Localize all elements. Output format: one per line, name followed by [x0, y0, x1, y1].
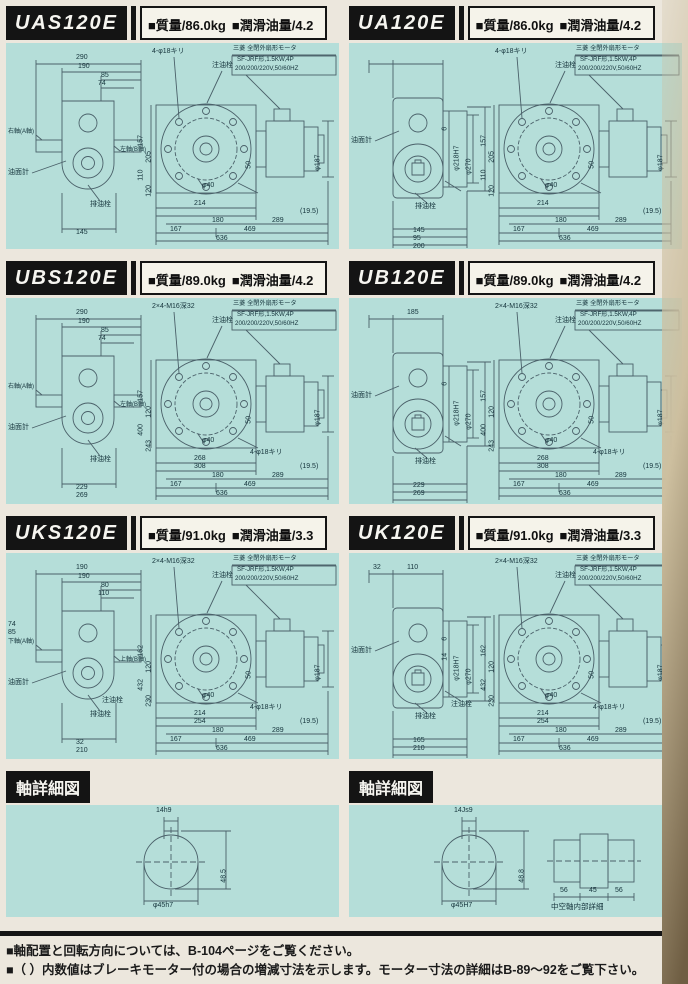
model-badge: UBS120E — [6, 261, 127, 295]
section-title: 軸詳細図 — [6, 771, 90, 803]
spec-oil: ■潤滑油量/4.2 — [560, 18, 642, 33]
dim-label: φ187 — [314, 154, 322, 170]
shaft-detail-drawing: 14h9 48.5 φ45h7 — [6, 805, 339, 917]
dim-label: 56 — [615, 887, 623, 895]
dim-label: 289 — [615, 472, 627, 480]
dim-label: 120 — [145, 185, 153, 197]
dim-label: 110 — [137, 170, 145, 181]
shaft-lineart — [6, 805, 339, 917]
header-separator — [459, 261, 464, 295]
spec-oil: ■潤滑油量/4.2 — [560, 273, 642, 288]
dim-label: φ40 — [545, 182, 557, 190]
dim-label: 157 — [137, 135, 145, 147]
motor-spec-line: 200/200/220V,50/60HZ — [578, 66, 641, 73]
dim-label: 180 — [212, 217, 224, 225]
dim-label: 205 — [145, 151, 153, 163]
motor-spec-line: SF-JRF形,1.5KW,4P — [580, 57, 637, 64]
shaft-detail-drawing: 14Js9 48.8 φ45H7 56 45 56 中空軸内部詳細 — [349, 805, 682, 917]
dim-label: 167 — [170, 481, 182, 489]
dim-label: 32 — [373, 564, 381, 572]
panel-row-1: UAS120E ■質量/86.0kg■潤滑油量/4.2 290 190 85 7… — [6, 6, 682, 249]
dim-label: (19.5) — [643, 208, 661, 216]
spec-oil: ■潤滑油量/4.2 — [232, 273, 314, 288]
dim-label: 636 — [559, 490, 571, 498]
dim-label: 167 — [513, 226, 525, 234]
dim-label: 229 — [413, 482, 425, 490]
section-title: 軸詳細図 — [349, 771, 433, 803]
footer-note-1: ■軸配置と回転方向については、B-104ページをご覧ください。 — [6, 942, 682, 961]
dim-label: φ45H7 — [451, 902, 472, 910]
motor-spec-line: 三菱 全閉外扇形モータ — [233, 556, 297, 563]
dim-label: 636 — [216, 235, 228, 243]
dim-label: 74 — [98, 335, 106, 343]
spec-mass: ■質量/86.0kg — [148, 18, 226, 33]
panel-ubs120e: UBS120E ■質量/89.0kg■潤滑油量/4.2 290 190 85 7… — [6, 261, 339, 504]
footer-note-2: ■（ ）内数値はブレーキモーター付の場合の増減寸法を示します。モーター寸法の詳細… — [6, 961, 682, 980]
shaft-detail-section-left: 軸詳細図 14h9 48.5 φ45h7 — [6, 771, 339, 917]
dim-label: 4-φ18キリ — [593, 704, 626, 712]
dim-label: 2×4-M16深32 — [152, 303, 195, 311]
dim-label: 157 — [137, 390, 145, 402]
dim-label: 50 — [245, 416, 253, 424]
dim-label: 469 — [244, 481, 256, 489]
motor-spec-line: SF-JRF形,1.5KW,4P — [237, 57, 294, 64]
dim-label: 210 — [413, 745, 425, 753]
dim-label: 4-φ18キリ — [152, 48, 185, 56]
dim-label: 214 — [537, 710, 549, 718]
dim-label: 48.5 — [220, 869, 228, 883]
dim-label: 80 — [101, 582, 109, 590]
footer-notes: ■軸配置と回転方向については、B-104ページをご覧ください。 ■（ ）内数値は… — [6, 942, 682, 980]
dim-label: 289 — [615, 217, 627, 225]
spec-oil: ■潤滑油量/3.3 — [232, 528, 314, 543]
dim-label: 2×4-M16深32 — [495, 558, 538, 566]
dim-label: 289 — [615, 727, 627, 735]
spec-box: ■質量/89.0kg■潤滑油量/4.2 — [140, 261, 327, 295]
dim-label: 230 — [145, 695, 153, 707]
dim-label: 74 — [98, 80, 106, 88]
dim-label: φ270 — [465, 158, 473, 174]
part-label: 排油栓 — [415, 458, 436, 466]
dim-label: 269 — [76, 492, 88, 500]
dim-label: 110 — [480, 170, 488, 181]
dim-label: 120 — [145, 661, 153, 673]
dim-label: 110 — [98, 590, 109, 598]
dim-label: 145 — [76, 229, 88, 237]
dim-label: 4-φ18キリ — [593, 449, 626, 457]
dim-label: φ218H7 — [453, 146, 461, 171]
dim-label: 180 — [212, 727, 224, 735]
dim-label: 157 — [480, 135, 488, 147]
spec-box: ■質量/86.0kg■潤滑油量/4.2 — [140, 6, 327, 40]
page-edge-shadow — [662, 0, 688, 984]
dim-label: 269 — [413, 490, 425, 498]
dim-label: φ40 — [545, 692, 557, 700]
dim-label: 254 — [194, 718, 206, 726]
dim-label: 50 — [245, 671, 253, 679]
dim-label: 636 — [559, 235, 571, 243]
part-label: 注油栓 — [212, 62, 233, 70]
part-label: 油面計 — [8, 169, 29, 177]
drawing-lineart — [6, 553, 339, 759]
dim-label: 45 — [589, 887, 597, 895]
panel-uk120e: UK120E ■質量/91.0kg■潤滑油量/3.3 110 32 油面計 6 … — [349, 516, 682, 759]
dim-label: 85 — [101, 327, 109, 335]
dim-label: 190 — [78, 63, 90, 71]
panel-uks120e: UKS120E ■質量/91.0kg■潤滑油量/3.3 190 190 80 1… — [6, 516, 339, 759]
dim-label: (19.5) — [300, 463, 318, 471]
spec-box: ■質量/89.0kg■潤滑油量/4.2 — [468, 261, 655, 295]
dim-label: 289 — [272, 217, 284, 225]
dim-label: φ270 — [465, 668, 473, 684]
dim-label: 6 — [441, 637, 449, 641]
dim-label: 162 — [137, 645, 145, 657]
dim-label: 243 — [488, 440, 496, 452]
dim-label: 167 — [513, 736, 525, 744]
dim-label: 167 — [170, 736, 182, 744]
shaft-detail-row: 軸詳細図 14h9 48.5 φ45h7 軸詳細図 — [6, 771, 682, 917]
dim-label: 268 — [537, 455, 549, 463]
dim-label: 56 — [560, 887, 568, 895]
panel-row-3: UKS120E ■質量/91.0kg■潤滑油量/3.3 190 190 80 1… — [6, 516, 682, 759]
dim-label: 308 — [194, 463, 206, 471]
part-label: 排油栓 — [415, 713, 436, 721]
header-separator — [459, 516, 464, 550]
part-label: 油面計 — [351, 392, 372, 400]
dim-label: 32 — [76, 739, 84, 747]
dimension-drawing: 190 190 80 110 下軸(A軸) 油面計 74 85 排油栓 注油栓 … — [6, 553, 339, 759]
part-label: 注油栓 — [102, 697, 123, 705]
dim-label: (19.5) — [643, 718, 661, 726]
dim-label: 50 — [588, 671, 596, 679]
dim-label: 14h9 — [156, 807, 172, 815]
panel-header: UK120E ■質量/91.0kg■潤滑油量/3.3 — [349, 516, 682, 550]
dim-label: φ40 — [202, 692, 214, 700]
dim-label: 4-φ18キリ — [250, 449, 283, 457]
panel-header: UB120E ■質量/89.0kg■潤滑油量/4.2 — [349, 261, 682, 295]
dim-label: 185 — [407, 309, 419, 317]
shaft-detail-section-right: 軸詳細図 14Js9 48.8 φ45H7 — [349, 771, 682, 917]
part-label: 油面計 — [351, 137, 372, 145]
header-separator — [459, 6, 464, 40]
dim-label: 214 — [194, 200, 206, 208]
dim-label: 289 — [272, 727, 284, 735]
motor-spec-line: 三菱 全閉外扇形モータ — [233, 46, 297, 53]
dim-label: 167 — [513, 481, 525, 489]
dim-label: 636 — [216, 490, 228, 498]
dim-label: 400 — [480, 424, 488, 436]
motor-spec-line: 200/200/220V,50/60HZ — [235, 321, 298, 328]
dim-label: 157 — [480, 390, 488, 402]
part-label: 右軸(A軸) — [8, 129, 38, 136]
dim-label: 180 — [555, 472, 567, 480]
dim-label: 50 — [588, 161, 596, 169]
part-label: 注油栓 — [555, 62, 576, 70]
header-separator — [131, 516, 136, 550]
dimension-drawing: 110 32 油面計 6 14 φ218H7 φ270 排油栓 注油栓 165 … — [349, 553, 682, 759]
dim-label: φ187 — [314, 409, 322, 425]
header-separator — [131, 6, 136, 40]
dim-label: (19.5) — [300, 718, 318, 726]
panel-row-2: UBS120E ■質量/89.0kg■潤滑油量/4.2 290 190 85 7… — [6, 261, 682, 504]
dim-label: 210 — [76, 747, 88, 755]
part-label: 油面計 — [8, 679, 29, 687]
spec-box: ■質量/91.0kg■潤滑油量/3.3 — [140, 516, 327, 550]
motor-spec-line: 三菱 全閉外扇形モータ — [233, 301, 297, 308]
dim-label: 180 — [555, 727, 567, 735]
header-separator — [131, 261, 136, 295]
part-label: 油面計 — [351, 647, 372, 655]
part-label: 排油栓 — [90, 201, 111, 209]
dim-label: φ218H7 — [453, 656, 461, 681]
dim-label: 214 — [194, 710, 206, 718]
catalog-page: UAS120E ■質量/86.0kg■潤滑油量/4.2 290 190 85 7… — [6, 6, 682, 980]
dim-label: 400 — [137, 424, 145, 436]
dim-label: 2×4-M16深32 — [152, 558, 195, 566]
dim-label: 214 — [537, 200, 549, 208]
dim-label: 432 — [480, 679, 488, 691]
dim-label: φ40 — [202, 437, 214, 445]
dim-label: 120 — [488, 406, 496, 418]
model-badge: UB120E — [349, 261, 455, 295]
spec-mass: ■質量/86.0kg — [476, 18, 554, 33]
motor-spec-line: 三菱 全閉外扇形モータ — [576, 301, 640, 308]
dim-label: 2×4-M16深32 — [495, 303, 538, 311]
dim-label: 50 — [588, 416, 596, 424]
spec-box: ■質量/86.0kg■潤滑油量/4.2 — [468, 6, 655, 40]
motor-spec-line: 三菱 全閉外扇形モータ — [576, 556, 640, 563]
drawing-lineart — [6, 298, 339, 504]
spec-mass: ■質量/91.0kg — [148, 528, 226, 543]
dim-label: 290 — [76, 54, 88, 62]
dim-label: 205 — [488, 151, 496, 163]
dim-label: 165 — [413, 737, 425, 745]
dim-label: 4-φ18キリ — [495, 48, 528, 56]
dim-label: 432 — [137, 679, 145, 691]
dim-label: (19.5) — [643, 463, 661, 471]
dim-label: 469 — [587, 226, 599, 234]
motor-spec-line: SF-JRF形,1.5KW,4P — [580, 567, 637, 574]
part-label: 注油栓 — [451, 701, 472, 709]
dim-label: 74 — [8, 621, 16, 629]
shaft-lineart — [349, 805, 682, 917]
dim-label: 162 — [480, 645, 488, 657]
spec-oil: ■潤滑油量/3.3 — [560, 528, 642, 543]
dim-label: φ45h7 — [153, 902, 173, 910]
motor-spec-line: 200/200/220V,50/60HZ — [235, 66, 298, 73]
dim-label: 180 — [555, 217, 567, 225]
spec-mass: ■質量/89.0kg — [476, 273, 554, 288]
dim-label: φ40 — [202, 182, 214, 190]
motor-spec-line: SF-JRF形,1.5KW,4P — [580, 312, 637, 319]
dim-label: 308 — [537, 463, 549, 471]
dim-label: 14Js9 — [454, 807, 473, 815]
dim-label: 6 — [441, 382, 449, 386]
model-badge: UAS120E — [6, 6, 127, 40]
spec-oil: ■潤滑油量/4.2 — [232, 18, 314, 33]
dim-label: 50 — [245, 161, 253, 169]
dim-label: φ270 — [465, 413, 473, 429]
motor-spec-line: 200/200/220V,50/60HZ — [235, 576, 298, 583]
model-badge: UA120E — [349, 6, 455, 40]
panel-header: UBS120E ■質量/89.0kg■潤滑油量/4.2 — [6, 261, 339, 295]
dim-label: 289 — [272, 472, 284, 480]
dimension-drawing: 290 190 85 74 右軸(A軸) 油面計 排油栓 左軸(B軸) 229 … — [6, 298, 339, 504]
dim-label: φ218H7 — [453, 401, 461, 426]
dim-label: φ40 — [545, 437, 557, 445]
dim-label: 636 — [559, 745, 571, 753]
dim-label: 110 — [407, 564, 418, 572]
dim-label: 4-φ18キリ — [250, 704, 283, 712]
drawing-lineart — [6, 43, 339, 249]
model-badge: UKS120E — [6, 516, 127, 550]
part-label: 排油栓 — [90, 456, 111, 464]
dim-label: 469 — [244, 736, 256, 744]
dim-label: 167 — [170, 226, 182, 234]
spec-box: ■質量/91.0kg■潤滑油量/3.3 — [468, 516, 655, 550]
dimension-drawing: 油面計 6 φ218H7 φ270 排油栓 145 95 200 4-φ18キリ… — [349, 43, 682, 249]
dim-label: 190 — [78, 318, 90, 326]
dim-label: 469 — [587, 481, 599, 489]
dim-label: 120 — [145, 406, 153, 418]
dim-label: 636 — [216, 745, 228, 753]
motor-spec-line: SF-JRF形,1.5KW,4P — [237, 567, 294, 574]
spec-mass: ■質量/91.0kg — [476, 528, 554, 543]
panel-header: UAS120E ■質量/86.0kg■潤滑油量/4.2 — [6, 6, 339, 40]
dim-label: 180 — [212, 472, 224, 480]
dim-label: 85 — [101, 72, 109, 80]
caption: 中空軸内部詳細 — [551, 903, 604, 911]
dim-label: 145 — [413, 227, 425, 235]
part-label: 注油栓 — [555, 572, 576, 580]
dim-label: 6 — [441, 127, 449, 131]
dim-label: 469 — [587, 736, 599, 744]
spec-mass: ■質量/89.0kg — [148, 273, 226, 288]
dim-label: 230 — [488, 695, 496, 707]
motor-spec-line: 三菱 全閉外扇形モータ — [576, 46, 640, 53]
panel-header: UKS120E ■質量/91.0kg■潤滑油量/3.3 — [6, 516, 339, 550]
dim-label: 469 — [244, 226, 256, 234]
dim-label: 229 — [76, 484, 88, 492]
dimension-drawing: 290 190 85 74 右軸(A軸) 油面計 排油栓 左軸(B軸) 145 … — [6, 43, 339, 249]
part-label: 油面計 — [8, 424, 29, 432]
part-label: 排油栓 — [415, 203, 436, 211]
dim-label: 268 — [194, 455, 206, 463]
dim-label: 120 — [488, 661, 496, 673]
dim-label: 14 — [441, 653, 449, 661]
dim-label: 85 — [8, 629, 16, 637]
part-label: 注油栓 — [555, 317, 576, 325]
dim-label: 254 — [537, 718, 549, 726]
dim-label: 48.8 — [518, 869, 526, 883]
dim-label: 243 — [145, 440, 153, 452]
part-label: 下軸(A軸) — [8, 639, 38, 646]
dim-label: 200 — [413, 243, 425, 251]
dim-label: 95 — [413, 235, 421, 243]
motor-spec-line: 200/200/220V,50/60HZ — [578, 576, 641, 583]
panel-ua120e: UA120E ■質量/86.0kg■潤滑油量/4.2 油面計 6 φ218H7 … — [349, 6, 682, 249]
panel-uas120e: UAS120E ■質量/86.0kg■潤滑油量/4.2 290 190 85 7… — [6, 6, 339, 249]
part-label: 注油栓 — [212, 572, 233, 580]
drawing-lineart — [349, 553, 682, 759]
dim-label: (19.5) — [300, 208, 318, 216]
dim-label: φ187 — [314, 664, 322, 680]
model-badge: UK120E — [349, 516, 455, 550]
motor-spec-line: SF-JRF形,1.5KW,4P — [237, 312, 294, 319]
dim-label: 120 — [488, 185, 496, 197]
divider-rule — [0, 931, 688, 936]
part-label: 右軸(A軸) — [8, 384, 38, 391]
dimension-drawing: 185 油面計 6 φ218H7 φ270 排油栓 229 269 2×4-M1… — [349, 298, 682, 504]
drawing-lineart — [349, 43, 682, 249]
drawing-lineart — [349, 298, 682, 504]
dim-label: 290 — [76, 309, 88, 317]
part-label: 排油栓 — [90, 711, 111, 719]
part-label: 注油栓 — [212, 317, 233, 325]
dim-label: 190 — [78, 573, 90, 581]
motor-spec-line: 200/200/220V,50/60HZ — [578, 321, 641, 328]
panel-ub120e: UB120E ■質量/89.0kg■潤滑油量/4.2 185 油面計 6 φ21… — [349, 261, 682, 504]
dim-label: 190 — [76, 564, 88, 572]
panel-header: UA120E ■質量/86.0kg■潤滑油量/4.2 — [349, 6, 682, 40]
